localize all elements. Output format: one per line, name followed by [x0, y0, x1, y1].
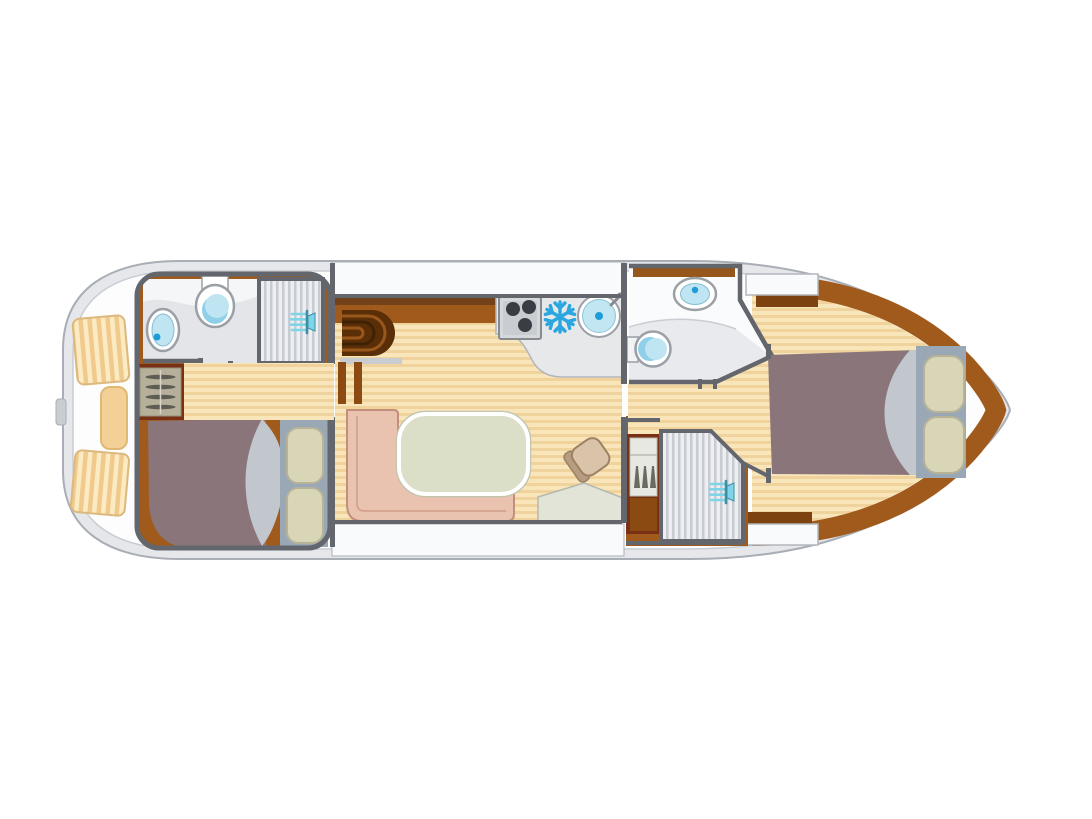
stern-bench-seat [101, 387, 127, 449]
floor-plan-canvas [0, 0, 1092, 819]
bottle-rack-icon [634, 466, 656, 488]
aft-bed-pillow [287, 428, 323, 483]
side-deck-bottom [332, 524, 624, 556]
stair-rail [354, 362, 362, 404]
bow-trim-top-strip [756, 294, 818, 307]
aft-cabin [136, 274, 334, 548]
stern-deck-mat-bottom [70, 450, 129, 516]
door-jamb [698, 379, 702, 389]
washbasin-icon-aft [147, 309, 179, 351]
stern-deck-mat-top [72, 315, 130, 385]
stern-swim-ladder [56, 399, 66, 425]
mid-bathroom-top-trim [633, 268, 735, 277]
stair-rail [338, 362, 346, 404]
stove-burners-icon [499, 297, 541, 339]
salon [330, 262, 627, 556]
bow-bed-pillow [924, 417, 964, 473]
mid-wardrobe [626, 434, 660, 534]
aft-bed [148, 419, 328, 547]
aft-bathroom [143, 276, 323, 374]
bow-bed-pillow [924, 356, 964, 412]
toilet-icon-bow [627, 332, 671, 367]
dinette [347, 410, 531, 521]
side-deck-top [332, 262, 624, 296]
mid-wardrobe-cabinet [630, 498, 657, 531]
aft-bed-pillow [287, 488, 323, 543]
bow-hatch-bottom [746, 524, 818, 545]
boat-floor-plan [0, 0, 1092, 819]
salon-table [399, 414, 528, 494]
aft-corridor-floor [184, 363, 334, 420]
wall-stub [766, 344, 771, 359]
mid-corridor-floor [628, 382, 724, 434]
bow-trim-bottom-strip [746, 512, 812, 525]
wall-stub [766, 468, 771, 483]
aft-wardrobe [136, 364, 185, 420]
washbasin-icon-bow [674, 278, 716, 310]
bow-hatch-top [746, 274, 818, 295]
door-jamb [713, 379, 717, 389]
toilet-icon-aft [196, 276, 234, 327]
